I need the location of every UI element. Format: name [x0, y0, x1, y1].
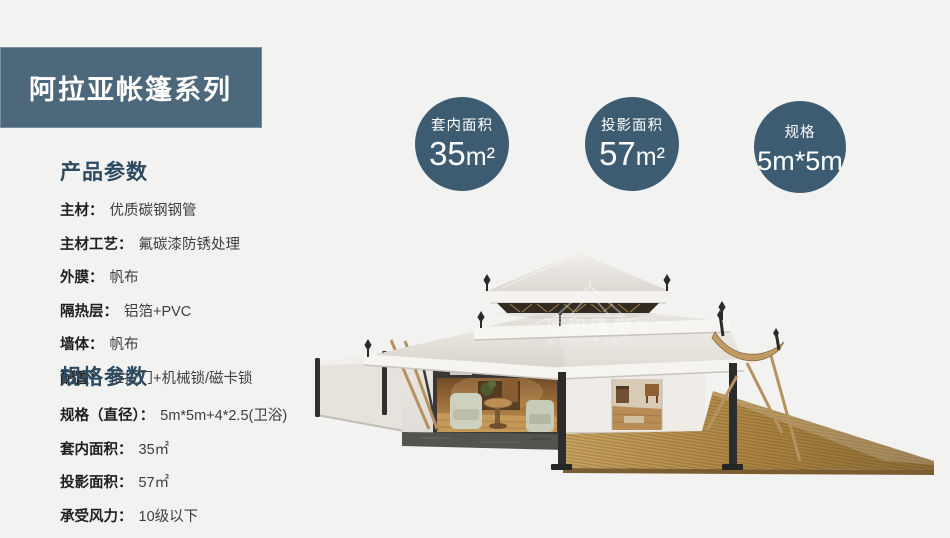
param-label: 主材工艺：	[60, 237, 133, 253]
stone-base	[402, 432, 566, 450]
param-value: 帆布	[110, 270, 139, 286]
param-label: 墙体：	[60, 337, 104, 353]
param-value: 氟碳漆防锈处理	[139, 237, 241, 253]
stat-value: 35m²	[429, 137, 495, 172]
param-label: 主材：	[60, 203, 104, 219]
spec-value: 10级以下	[139, 509, 199, 525]
tent-product-image: 顶和篷房 WELL TENT	[310, 228, 950, 534]
page-title: 阿拉亚帐篷系列	[29, 68, 232, 107]
stat-label: 规格	[785, 121, 816, 142]
tent-roof: 顶和篷房 WELL TENT	[364, 252, 744, 380]
svg-text:WELL TENT: WELL TENT	[547, 338, 633, 348]
stat-value: 57m²	[599, 137, 665, 172]
side-pavilion	[566, 374, 705, 433]
product-params-heading: 产品参数	[60, 156, 390, 186]
param-row: 主材：优质碳钢钢管	[60, 199, 390, 220]
param-value: 优质碳钢钢管	[110, 203, 197, 219]
stat-circle-projected-area: 投影面积 57m²	[585, 97, 679, 191]
stat-label: 套内面积	[431, 114, 493, 135]
param-value: 铝箔+PVC	[124, 304, 191, 320]
stat-value: 5m*5m	[757, 147, 843, 175]
spec-label: 规格（直径）：	[60, 408, 154, 424]
spec-label: 套内面积：	[60, 442, 133, 458]
spec-label: 承受风力：	[60, 509, 133, 525]
spec-value: 5m*5m+4*2.5(卫浴)	[160, 408, 287, 424]
svg-text:顶和篷房: 顶和篷房	[544, 315, 636, 338]
title-banner: 阿拉亚帐篷系列	[0, 47, 262, 128]
spec-label: 投影面积：	[60, 475, 133, 491]
stat-circle-inner-area: 套内面积 35m²	[415, 97, 509, 191]
param-label: 隔热层：	[60, 304, 118, 320]
param-value: 帆布	[110, 337, 139, 353]
stat-label: 投影面积	[601, 114, 663, 135]
param-label: 外膜：	[60, 270, 104, 286]
spec-value: 35㎡	[139, 442, 170, 458]
stat-circle-size: 规格 5m*5m	[754, 101, 846, 193]
spec-value: 57㎡	[139, 475, 170, 491]
